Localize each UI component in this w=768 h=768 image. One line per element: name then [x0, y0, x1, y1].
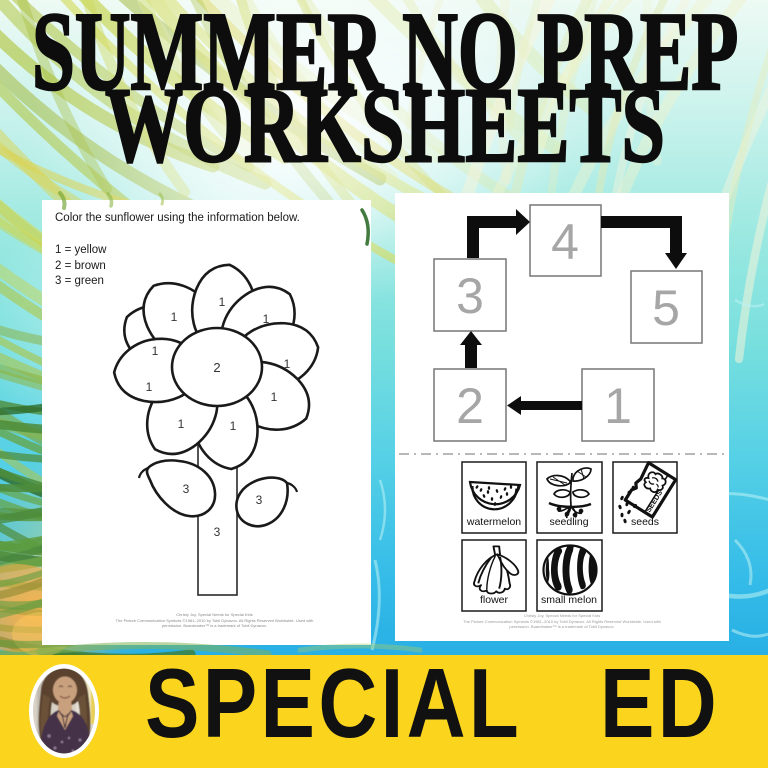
svg-text:2: 2: [213, 360, 220, 375]
svg-text:small melon: small melon: [541, 594, 597, 606]
svg-text:watermelon: watermelon: [466, 516, 521, 528]
svg-text:1: 1: [604, 378, 632, 434]
svg-text:3: 3: [214, 525, 221, 539]
svg-text:1: 1: [263, 312, 270, 326]
svg-text:1: 1: [152, 344, 159, 358]
svg-text:seedling: seedling: [549, 516, 588, 528]
svg-text:flower: flower: [480, 594, 509, 606]
svg-text:1: 1: [178, 417, 185, 431]
svg-text:1: 1: [271, 390, 278, 404]
svg-text:seeds: seeds: [631, 516, 659, 528]
svg-text:1: 1: [284, 357, 291, 371]
svg-text:1: 1: [219, 295, 226, 309]
svg-text:1: 1: [146, 380, 153, 394]
svg-text:3: 3: [456, 268, 484, 324]
svg-text:4: 4: [551, 214, 579, 270]
svg-text:3: 3: [183, 482, 190, 496]
svg-text:5: 5: [652, 280, 680, 336]
svg-text:1: 1: [171, 310, 178, 324]
svg-text:2: 2: [456, 378, 484, 434]
svg-text:1: 1: [230, 419, 237, 433]
svg-text:3: 3: [256, 493, 263, 507]
